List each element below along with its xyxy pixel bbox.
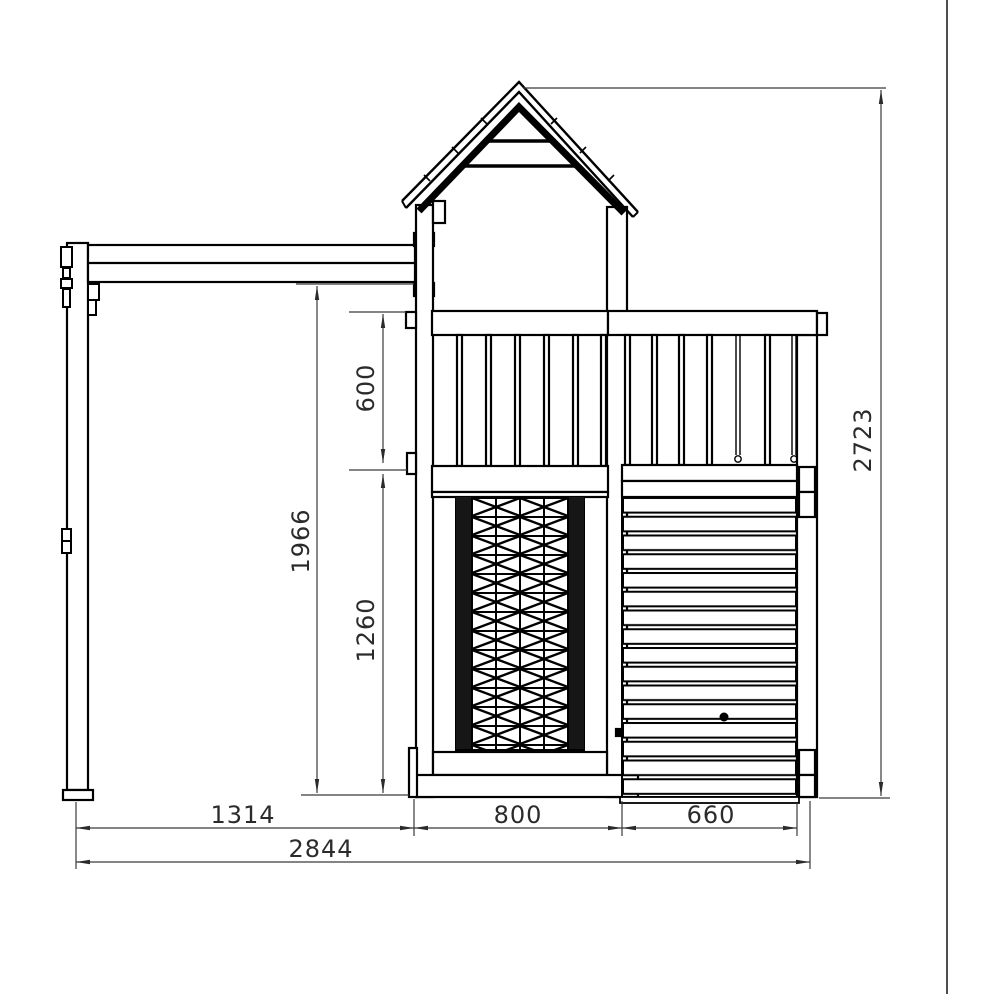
net-edge-left bbox=[456, 497, 473, 750]
climbing-wall-slats bbox=[622, 497, 797, 797]
swing-beam bbox=[88, 233, 434, 296]
dim-label-climb-wall-width: 660 bbox=[687, 801, 736, 829]
platform-balusters bbox=[625, 335, 797, 465]
dim-label-overall-height: 2723 bbox=[849, 407, 877, 472]
dim-label-railing-height: 600 bbox=[352, 364, 380, 413]
net-edge-right bbox=[567, 497, 584, 750]
dim-label-overall-width: 2844 bbox=[288, 835, 353, 863]
dim-label-beam-height: 1966 bbox=[287, 508, 315, 573]
tower-railing-top-rail bbox=[432, 311, 608, 335]
tower-deck-board bbox=[432, 466, 608, 492]
tower-step-bracket-upper bbox=[406, 312, 416, 328]
climbing-wall-hole bbox=[720, 713, 729, 722]
roof-rafters bbox=[419, 107, 624, 213]
platform-deck-board-2 bbox=[622, 481, 797, 497]
climbing-net bbox=[456, 497, 584, 750]
tower-bottom-rail-lower bbox=[416, 775, 638, 797]
dim-label-deck-height: 1260 bbox=[352, 597, 380, 662]
swing-post-anchor-marks bbox=[61, 247, 72, 307]
technical-drawing-sheet: 2723 1966 600 1260 1314 800 660 2844 bbox=[0, 0, 994, 994]
tower-left-post bbox=[416, 205, 433, 797]
climbing-wall bbox=[620, 497, 799, 803]
tower-step-bracket-lower bbox=[407, 453, 416, 474]
platform-deck-board-1 bbox=[622, 465, 797, 481]
roof bbox=[402, 82, 638, 217]
swing-post-mid-connector bbox=[62, 529, 71, 553]
wall-right-post bbox=[797, 335, 817, 797]
tower-bottom-rail-upper bbox=[433, 752, 607, 775]
dim-label-tower-width: 800 bbox=[494, 801, 543, 829]
swing-post-body bbox=[67, 243, 88, 790]
platform-rail-end-cap bbox=[817, 313, 827, 335]
platform-top-rail bbox=[608, 311, 817, 335]
swing-post bbox=[61, 243, 99, 800]
tower-bottom-left-board bbox=[409, 748, 417, 797]
swing-post-foot bbox=[63, 790, 93, 800]
swing-post-bracket bbox=[88, 284, 99, 315]
dim-label-swing-bay-width: 1314 bbox=[210, 801, 275, 829]
playtower-elevation-drawing: 2723 1966 600 1260 1314 800 660 2844 bbox=[0, 0, 994, 994]
tower-railing-balusters bbox=[457, 335, 606, 466]
tower-post-top-bracket bbox=[433, 201, 445, 223]
